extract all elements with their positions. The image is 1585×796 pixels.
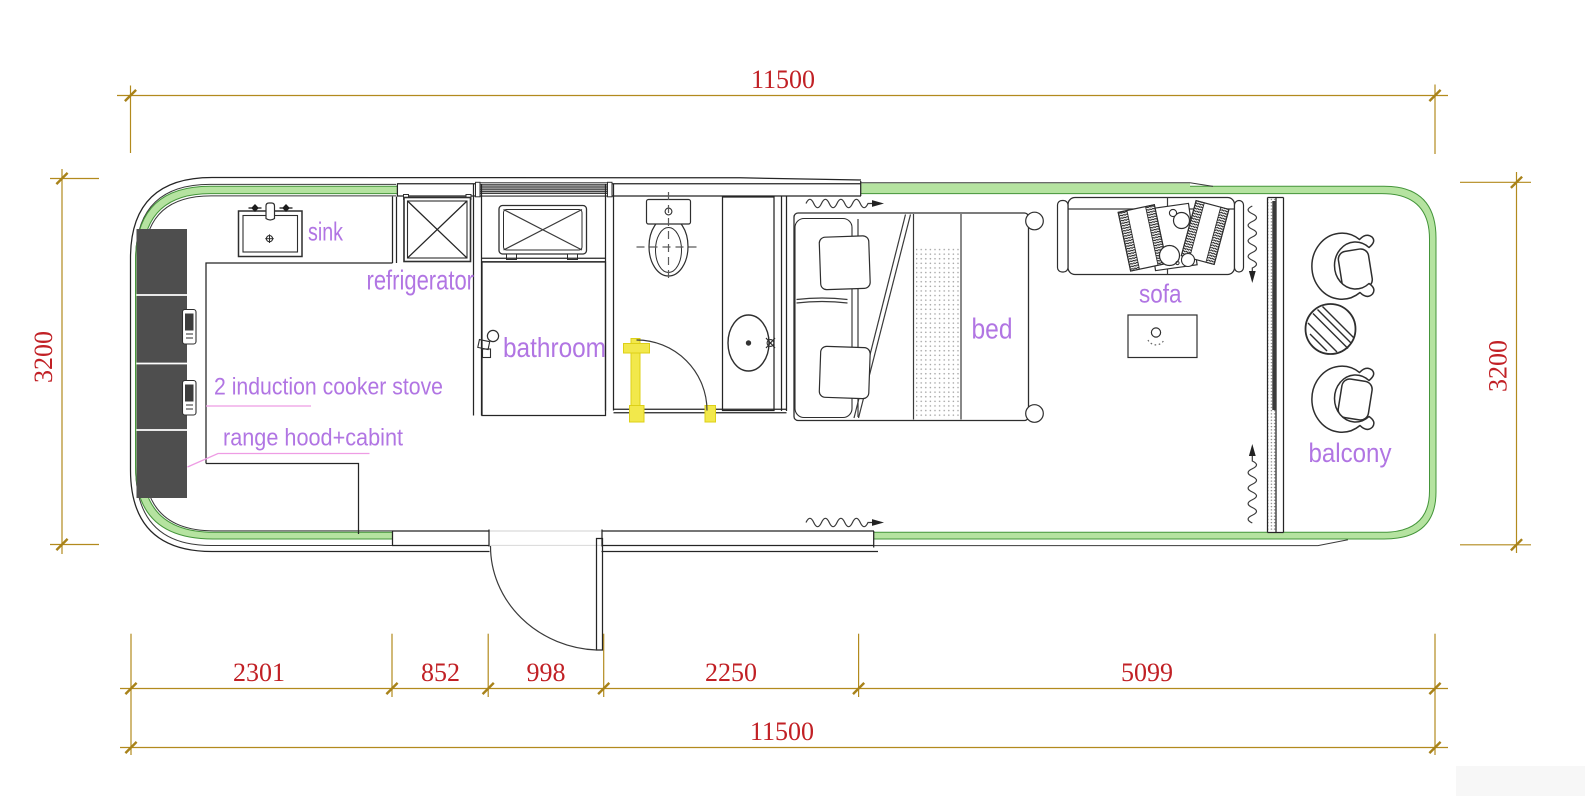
svg-text:refrigerator: refrigerator xyxy=(367,265,475,296)
svg-text:11500: 11500 xyxy=(750,717,814,746)
svg-text:852: 852 xyxy=(421,658,460,687)
svg-text:3200: 3200 xyxy=(1484,340,1513,392)
svg-text:2 induction cooker stove: 2 induction cooker stove xyxy=(214,374,443,401)
svg-text:5099: 5099 xyxy=(1121,658,1173,687)
svg-text:2301: 2301 xyxy=(233,658,285,687)
svg-text:range hood+cabint: range hood+cabint xyxy=(223,425,403,452)
svg-text:bathroom: bathroom xyxy=(503,332,606,363)
svg-text:998: 998 xyxy=(527,658,566,687)
svg-text:sink: sink xyxy=(308,217,344,247)
svg-text:2250: 2250 xyxy=(705,658,757,687)
svg-text:balcony: balcony xyxy=(1309,438,1392,468)
svg-text:3200: 3200 xyxy=(29,331,58,383)
svg-text:bed: bed xyxy=(972,314,1013,346)
svg-text:11500: 11500 xyxy=(751,65,815,94)
svg-text:sofa: sofa xyxy=(1139,279,1182,309)
